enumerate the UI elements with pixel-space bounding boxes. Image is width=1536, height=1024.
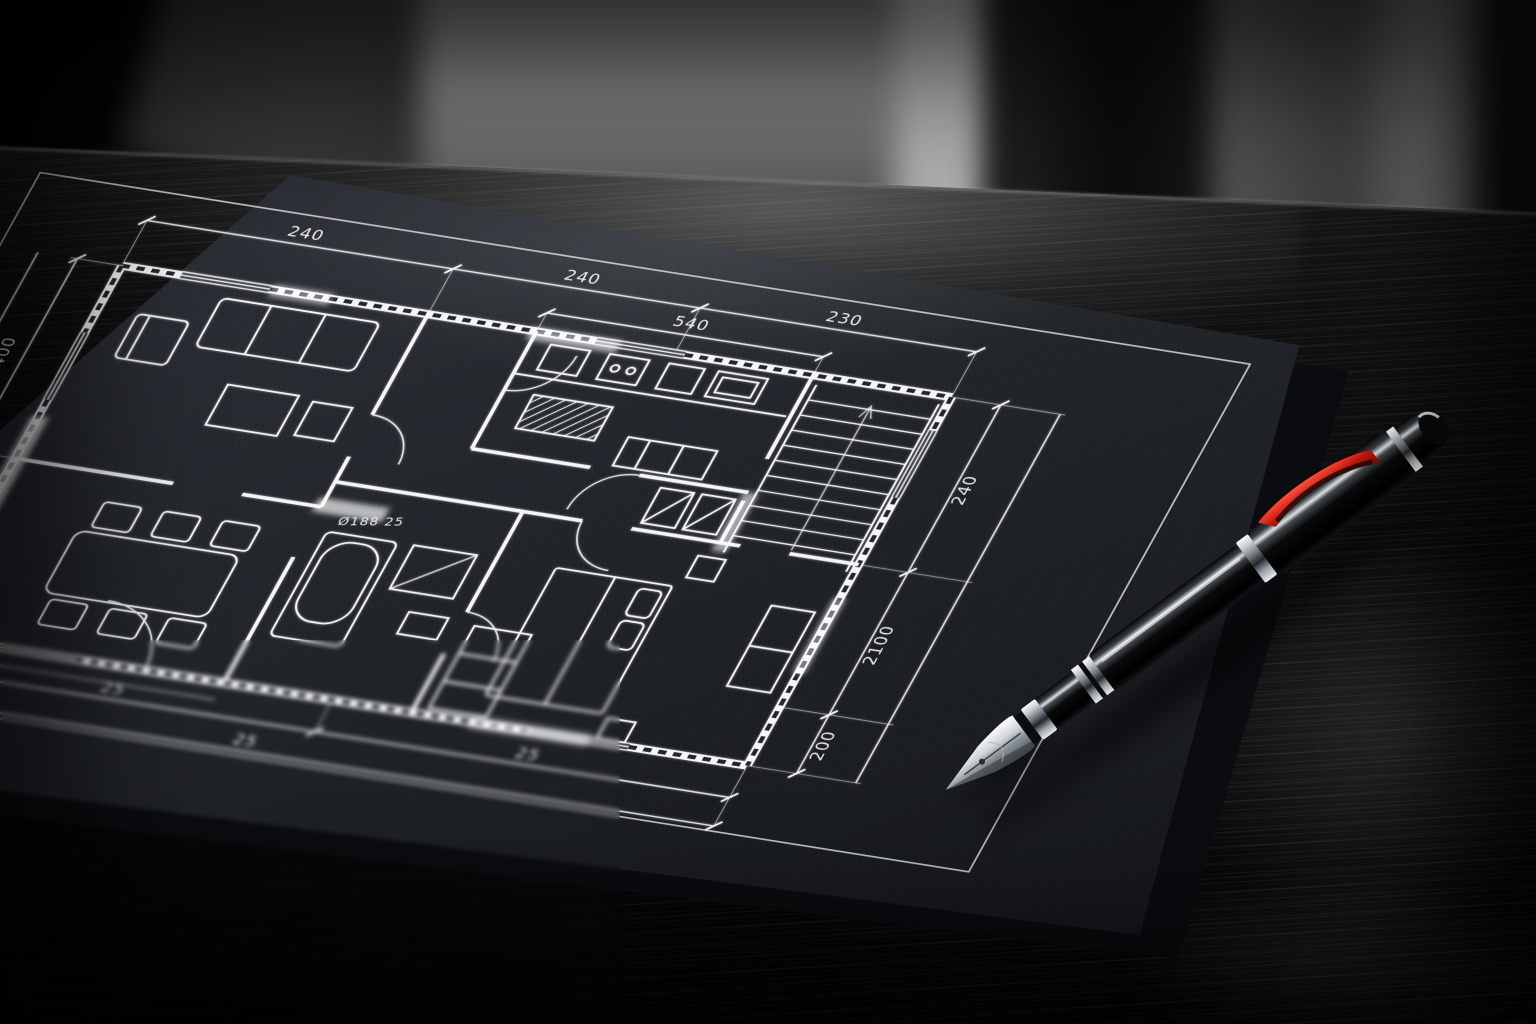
living-room-furniture — [87, 287, 398, 445]
dim-label-top-inner: 540 — [669, 313, 713, 335]
photo-scene: 240 240 230 540 240 2100 200 400 140 25 … — [0, 0, 1536, 1024]
dim-label-right-2: 2100 — [858, 624, 899, 667]
depth-of-field-blur — [0, 640, 620, 1024]
dim-label-left-1: 400 — [0, 335, 21, 368]
plan-annotation-2: Ø188 25 — [336, 515, 406, 529]
dim-label-top-1: 240 — [284, 222, 328, 244]
dim-label-right-3: 200 — [805, 729, 841, 762]
dim-label-top-3: 230 — [823, 308, 867, 330]
dim-label-right-1: 240 — [947, 474, 983, 507]
dim-label-top-2: 240 — [561, 266, 605, 288]
dining-furniture — [26, 500, 261, 649]
